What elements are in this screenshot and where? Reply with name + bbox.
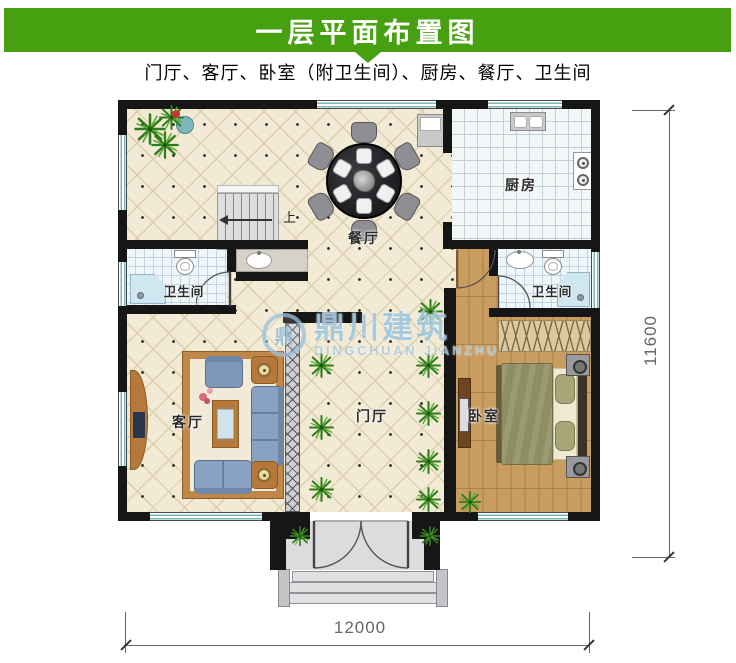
wall: [443, 109, 452, 153]
toilet: [542, 250, 564, 258]
wall: [283, 312, 362, 323]
wall: [270, 513, 286, 570]
dining-chair: [351, 122, 377, 143]
stove: [573, 152, 592, 190]
stair-landing: [217, 185, 279, 193]
wall: [118, 306, 127, 392]
wall: [443, 240, 600, 249]
dimension-line: [125, 645, 590, 646]
plant-icon: [415, 448, 442, 475]
nightstand: [566, 456, 590, 478]
bottom-width-dimension: 12000: [325, 618, 395, 638]
page-title: 一层平面布置图: [256, 11, 480, 50]
plant-icon: [415, 486, 442, 513]
table-centerpiece: [353, 170, 375, 192]
wall: [443, 222, 452, 240]
pillow: [555, 421, 575, 451]
porch-step-rail: [278, 569, 290, 607]
sofa-three-seat: [251, 386, 284, 466]
toilet-bowl: [176, 258, 194, 275]
pillow: [555, 374, 575, 404]
wall: [444, 288, 456, 512]
hall-label: 门厅: [340, 406, 404, 426]
toilet: [174, 250, 196, 258]
wall: [118, 100, 317, 109]
plant-icon: [289, 525, 311, 547]
window: [488, 100, 562, 109]
window: [118, 135, 127, 210]
dining-room-label: 餐厅: [334, 228, 394, 248]
window: [150, 512, 262, 521]
armchair: [205, 356, 243, 388]
kitchen-sink: [510, 112, 546, 131]
nightstand: [566, 354, 590, 376]
wall: [118, 466, 127, 521]
plant-icon: [417, 298, 444, 325]
stair-up-label: 上: [283, 207, 296, 226]
title-banner: 一层平面布置图: [4, 8, 731, 52]
washbasin: [246, 252, 272, 269]
dimension-line: [669, 110, 670, 557]
washbasin: [506, 251, 534, 269]
plant-icon: [308, 414, 335, 441]
window: [591, 252, 600, 308]
plate: [356, 198, 372, 214]
plant-icon: [415, 352, 442, 379]
stair-arrow-head-icon: [219, 215, 228, 225]
wardrobe: [498, 320, 591, 352]
plant-icon: [415, 400, 442, 427]
plant-icon: [308, 476, 335, 503]
dimension-extension-line: [589, 612, 590, 653]
living-room-label: 客厅: [158, 412, 218, 432]
flower-decor: [204, 398, 210, 404]
porch-step: [286, 582, 440, 593]
toilet-bowl: [544, 258, 562, 275]
window: [118, 392, 127, 466]
porch-step: [280, 593, 446, 604]
wall: [591, 308, 600, 521]
sofa-two-seat: [194, 460, 252, 494]
wall: [436, 100, 488, 109]
flower-decor: [172, 110, 180, 118]
right-height-dimension: 11600: [641, 300, 661, 380]
wall: [236, 272, 308, 281]
wall: [591, 100, 600, 252]
dining-table-set: [309, 126, 419, 236]
lamp: [257, 468, 271, 482]
wall: [118, 100, 127, 135]
flower-decor: [207, 388, 213, 394]
bathroom-left-label: 卫生间: [152, 281, 216, 300]
lamp: [257, 363, 271, 377]
plate: [356, 148, 372, 164]
plant-icon: [158, 104, 185, 131]
room-list-subtitle: 门厅、客厅、卧室（附卫生间）、厨房、餐厅、卫生间: [0, 59, 736, 85]
plant-icon: [308, 352, 335, 379]
wall: [118, 240, 308, 249]
plant-icon: [419, 525, 441, 547]
coffee-table-glass: [217, 409, 234, 439]
bedroom-label: 卧室: [452, 406, 516, 426]
window: [317, 100, 436, 109]
shower-drain: [137, 292, 144, 299]
bedroom-door: [456, 249, 496, 291]
wall: [118, 210, 127, 262]
plant-icon: [150, 130, 180, 160]
porch-step-rail: [436, 569, 448, 607]
plant-icon: [458, 490, 482, 514]
entry-double-door: [306, 517, 416, 573]
bed-headboard: [578, 366, 587, 462]
tv: [133, 412, 145, 438]
kitchen-label: 厨房: [491, 175, 551, 195]
living-hall-divider-screen: [285, 323, 300, 512]
window: [478, 512, 568, 521]
floor-plan-page: 一层平面布置图 门厅、客厅、卧室（附卫生间）、厨房、餐厅、卫生间: [0, 0, 736, 663]
window: [118, 262, 127, 306]
cabinet: [417, 114, 444, 147]
stair-direction-arrow: [226, 219, 272, 221]
bathroom-right-label: 卫生间: [520, 281, 584, 300]
